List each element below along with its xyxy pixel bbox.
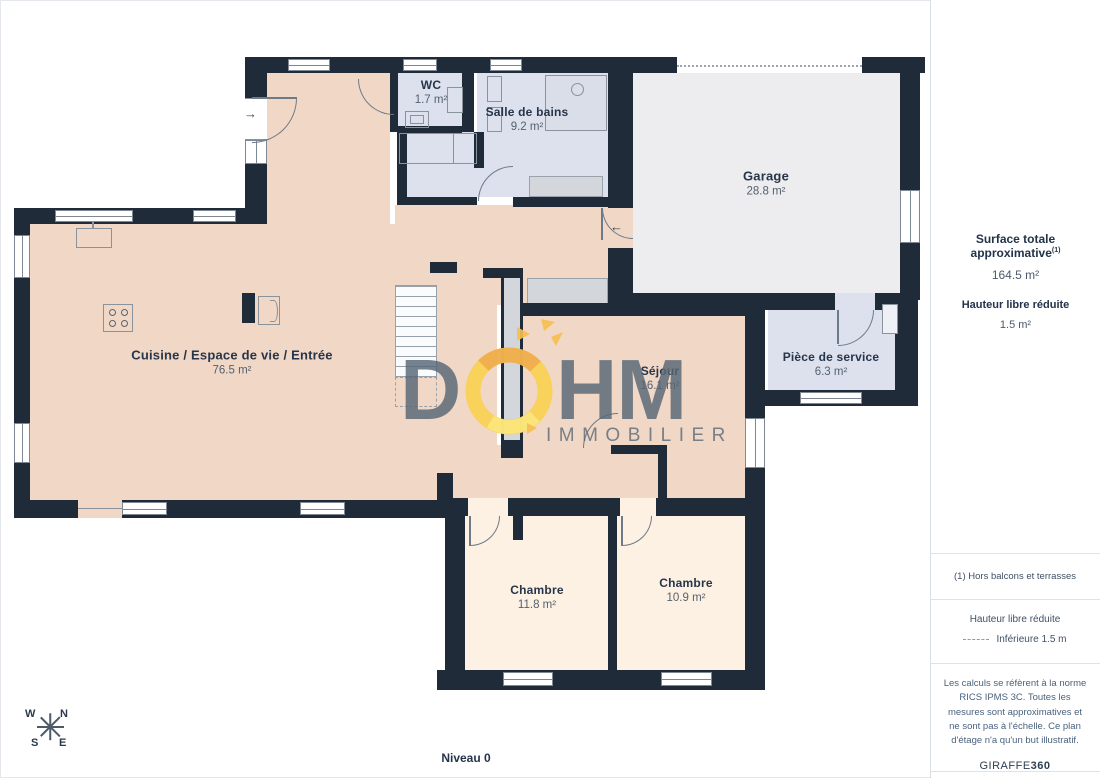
door-opening bbox=[620, 498, 656, 516]
legend-block: Hauteur libre réduite Inférieure 1.5 m bbox=[930, 599, 1100, 663]
wc-cabinet bbox=[447, 87, 463, 113]
giraffe360-logo: GIRAFFE360 bbox=[930, 760, 1100, 772]
door-leaf bbox=[837, 310, 839, 344]
stairs-dashed bbox=[395, 377, 437, 407]
footnote-text: (1) Hors balcons et terrasses bbox=[930, 553, 1100, 599]
water-heater-fixture bbox=[882, 304, 898, 334]
door-leaf bbox=[252, 97, 297, 99]
window bbox=[14, 235, 30, 278]
room-label-chambre1: Chambre 11.8 m² bbox=[510, 583, 563, 611]
entry-arrow: → bbox=[244, 106, 257, 121]
room-label-cuisine: Cuisine / Espace de vie / Entrée 76.5 m² bbox=[131, 348, 332, 377]
surface-summary: Surface totale approximative(1) 164.5 m²… bbox=[931, 232, 1100, 331]
burner-icon bbox=[121, 309, 128, 316]
wall-opening bbox=[78, 500, 122, 518]
window bbox=[245, 140, 267, 164]
dashed-line-icon bbox=[963, 639, 989, 640]
window bbox=[403, 59, 437, 71]
footnote-marker: (1) bbox=[1052, 247, 1061, 254]
wall-segment bbox=[245, 164, 267, 224]
room-floor-sejour bbox=[520, 316, 745, 500]
garage-door-dashes bbox=[677, 65, 862, 67]
room-label-service: Pièce de service 6.3 m² bbox=[783, 350, 880, 378]
wall-segment bbox=[513, 197, 608, 207]
floorplan-page: → ← WC 1.7 m² bbox=[0, 0, 1100, 778]
toilet-fixture bbox=[405, 111, 429, 128]
wall-segment bbox=[608, 516, 617, 672]
bath-cabinet bbox=[487, 76, 502, 102]
door-leaf bbox=[601, 208, 603, 240]
wall-segment bbox=[608, 57, 633, 208]
door-leaf bbox=[621, 516, 623, 546]
wall-segment bbox=[397, 197, 477, 205]
fireplace-curve bbox=[270, 300, 278, 322]
garage-entry-arrow: ← bbox=[610, 219, 623, 234]
hall-mat bbox=[527, 278, 608, 304]
burner-icon bbox=[109, 309, 116, 316]
compass-west: W bbox=[25, 708, 35, 720]
wall-segment bbox=[658, 445, 667, 516]
fireplace-fixture bbox=[258, 296, 280, 325]
window bbox=[14, 423, 30, 463]
window bbox=[288, 59, 330, 71]
bath-mat bbox=[529, 176, 603, 197]
wall-segment bbox=[513, 516, 523, 540]
stove-fixture bbox=[103, 304, 133, 332]
shower-drain bbox=[571, 83, 584, 96]
door-opening bbox=[835, 293, 875, 310]
window bbox=[55, 210, 133, 222]
vestibule-counter bbox=[399, 133, 477, 164]
room-label-garage: Garage 28.8 m² bbox=[743, 169, 789, 198]
wall-segment bbox=[900, 57, 920, 300]
window bbox=[122, 502, 167, 515]
disclaimer-block: Les calculs se réfèrent à la norme RICS … bbox=[930, 663, 1100, 772]
wall-segment bbox=[462, 73, 474, 132]
room-label-wc: WC 1.7 m² bbox=[415, 78, 448, 106]
window bbox=[193, 210, 236, 222]
window bbox=[745, 418, 765, 468]
window bbox=[490, 59, 522, 71]
brand-number: 360 bbox=[1031, 760, 1051, 772]
surface-total-label: Surface totale approximative(1) bbox=[931, 232, 1100, 260]
burner-icon bbox=[121, 320, 128, 327]
window bbox=[800, 392, 862, 404]
sink-tap bbox=[92, 221, 94, 229]
legend-row: Inférieure 1.5 m bbox=[930, 634, 1100, 645]
room-label-bain: Salle de bains 9.2 m² bbox=[486, 105, 569, 133]
compass-north: N bbox=[60, 708, 68, 720]
window bbox=[300, 502, 345, 515]
window bbox=[661, 672, 712, 686]
room-label-chambre2: Chambre 10.9 m² bbox=[659, 576, 712, 604]
stairs bbox=[395, 285, 437, 377]
garage-door bbox=[677, 57, 862, 73]
compass-south: S bbox=[31, 737, 38, 749]
wall-segment bbox=[430, 262, 457, 273]
wall-segment bbox=[745, 303, 765, 500]
sink-fixture bbox=[76, 228, 112, 248]
glazed-partition bbox=[504, 278, 520, 440]
burner-icon bbox=[109, 320, 116, 327]
legend-title: Hauteur libre réduite bbox=[930, 614, 1100, 625]
compass-east: E bbox=[59, 737, 66, 749]
wall-segment bbox=[445, 498, 465, 690]
room-label-sejour: Séjour 16.1 m² bbox=[641, 364, 680, 392]
wall-segment bbox=[608, 248, 633, 298]
counter-divider bbox=[453, 134, 454, 164]
disclaimer-text: Les calculs se réfèrent à la norme RICS … bbox=[943, 677, 1087, 748]
door-opening bbox=[468, 498, 508, 516]
wall-segment bbox=[745, 498, 765, 690]
wall-segment bbox=[437, 670, 765, 690]
toilet-bowl bbox=[410, 115, 424, 124]
window bbox=[503, 672, 553, 686]
window bbox=[900, 190, 920, 243]
opening-line bbox=[78, 508, 122, 509]
reduced-height-value: 1.5 m² bbox=[931, 319, 1100, 331]
brand-name: GIRAFFE bbox=[979, 760, 1030, 772]
wall-segment bbox=[437, 473, 453, 500]
surface-total-value: 164.5 m² bbox=[931, 268, 1100, 282]
reduced-height-label: Hauteur libre réduite bbox=[931, 299, 1100, 311]
legend-value: Inférieure 1.5 m bbox=[996, 634, 1066, 645]
fireplace-fixture bbox=[242, 293, 255, 323]
door-leaf bbox=[469, 516, 471, 546]
level-label: Niveau 0 bbox=[416, 751, 516, 765]
wall-segment bbox=[503, 303, 765, 316]
